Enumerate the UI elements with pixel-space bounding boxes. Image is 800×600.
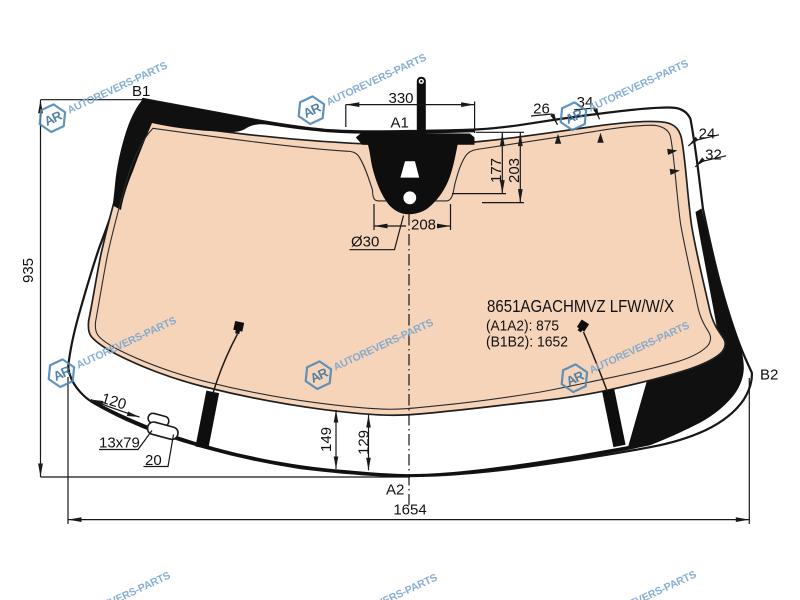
svg-text:24: 24 [699, 125, 716, 142]
svg-text:935: 935 [20, 258, 37, 283]
svg-text:13x79: 13x79 [99, 435, 140, 452]
svg-text:Ø30: Ø30 [351, 234, 379, 251]
svg-text:A1: A1 [391, 115, 409, 132]
svg-text:149: 149 [318, 427, 335, 452]
svg-text:203: 203 [506, 158, 523, 183]
svg-text:8651AGACHMVZ LFW/W/X: 8651AGACHMVZ LFW/W/X [487, 296, 674, 316]
svg-text:177: 177 [488, 158, 505, 183]
svg-text:A2: A2 [386, 482, 404, 499]
svg-text:(A1A2): 875: (A1A2): 875 [486, 319, 559, 335]
svg-text:20: 20 [145, 452, 162, 469]
svg-text:(B1B2): 1652: (B1B2): 1652 [486, 335, 568, 351]
svg-text:1654: 1654 [393, 502, 426, 519]
svg-text:208: 208 [411, 217, 436, 234]
svg-text:129: 129 [356, 430, 373, 455]
svg-text:32: 32 [705, 146, 722, 163]
svg-text:330: 330 [388, 90, 413, 107]
svg-text:B2: B2 [760, 367, 778, 384]
svg-text:26: 26 [533, 101, 550, 118]
